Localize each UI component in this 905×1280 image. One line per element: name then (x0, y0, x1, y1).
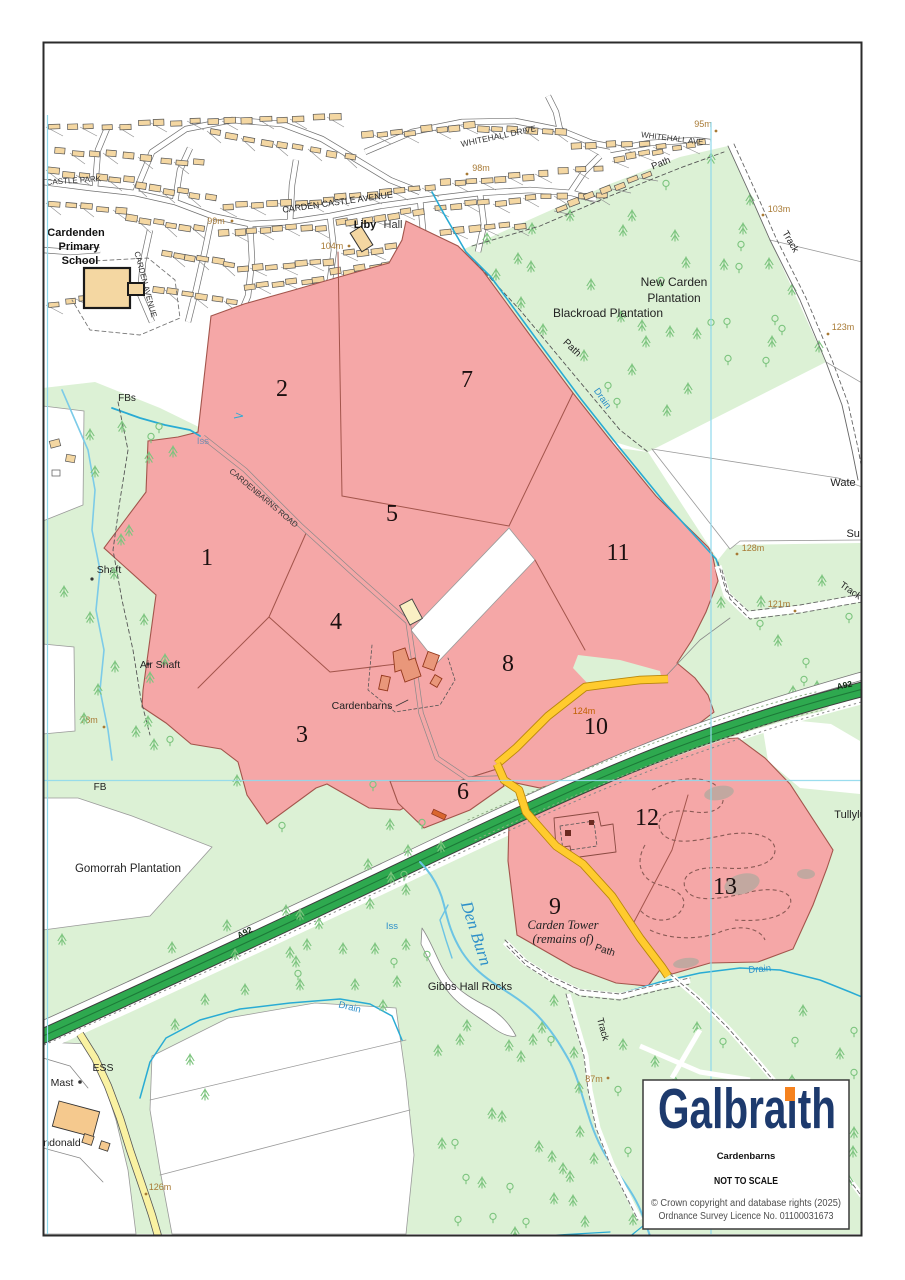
svg-text:Liby: Liby (354, 219, 377, 231)
svg-text:Galbraith: Galbraith (658, 1077, 836, 1141)
svg-text:Ordnance Survey Licence No. 01: Ordnance Survey Licence No. 01100031673 (659, 1211, 834, 1222)
svg-text:2: 2 (276, 376, 288, 402)
svg-text:Carden Tower: Carden Tower (528, 918, 599, 932)
svg-text:Cardenbarns: Cardenbarns (332, 700, 393, 712)
svg-text:FBs: FBs (118, 393, 136, 404)
svg-text:Hall: Hall (384, 219, 403, 231)
svg-text:(remains of): (remains of) (533, 932, 594, 946)
svg-text:87m: 87m (585, 1074, 603, 1084)
svg-text:School: School (62, 255, 99, 267)
svg-text:95m: 95m (694, 119, 712, 129)
svg-text:Wate: Wate (830, 477, 855, 489)
svg-text:ESS: ESS (92, 1062, 113, 1074)
svg-text:Gibbs Hall Rocks: Gibbs Hall Rocks (428, 981, 513, 993)
svg-text:13: 13 (713, 874, 737, 900)
svg-text:FB: FB (94, 782, 107, 793)
svg-text:104m: 104m (321, 241, 344, 251)
svg-text:7: 7 (461, 367, 473, 393)
svg-text:9: 9 (549, 894, 561, 920)
svg-text:128m: 128m (742, 543, 765, 553)
svg-text:1: 1 (201, 545, 213, 571)
svg-text:Cardenden: Cardenden (47, 227, 105, 239)
svg-text:Air Shaft: Air Shaft (140, 659, 180, 671)
svg-text:123m: 123m (832, 322, 855, 332)
svg-text:© Crown copyright and database: © Crown copyright and database rights (2… (651, 1198, 841, 1209)
svg-text:126m: 126m (149, 1182, 172, 1192)
svg-text:Gomorrah Plantation: Gomorrah Plantation (75, 863, 181, 875)
svg-text:Mast: Mast (51, 1077, 74, 1089)
svg-text:4: 4 (330, 609, 342, 635)
svg-text:ndonald: ndonald (43, 1137, 81, 1149)
svg-text:Iss: Iss (386, 921, 398, 932)
svg-text:6: 6 (457, 779, 469, 805)
svg-text:Cardenbarns: Cardenbarns (717, 1151, 776, 1162)
svg-text:5: 5 (386, 501, 398, 527)
svg-text:98m: 98m (472, 163, 490, 173)
svg-text:12: 12 (635, 805, 659, 831)
svg-text:Primary: Primary (59, 241, 101, 253)
svg-text:10: 10 (584, 714, 608, 740)
svg-text:103m: 103m (768, 204, 791, 214)
svg-text:Iss: Iss (197, 436, 209, 447)
svg-text:Blackroad Plantation: Blackroad Plantation (553, 306, 663, 320)
svg-text:121m: 121m (768, 599, 791, 609)
svg-text:Plantation: Plantation (647, 291, 700, 305)
svg-text:New Carden: New Carden (641, 275, 708, 289)
svg-text:Drain: Drain (748, 963, 772, 976)
svg-text:3: 3 (296, 722, 308, 748)
svg-text:8: 8 (502, 651, 514, 677)
svg-text:11: 11 (606, 540, 629, 566)
svg-text:99m: 99m (207, 216, 225, 226)
svg-text:NOT TO SCALE: NOT TO SCALE (714, 1175, 778, 1187)
